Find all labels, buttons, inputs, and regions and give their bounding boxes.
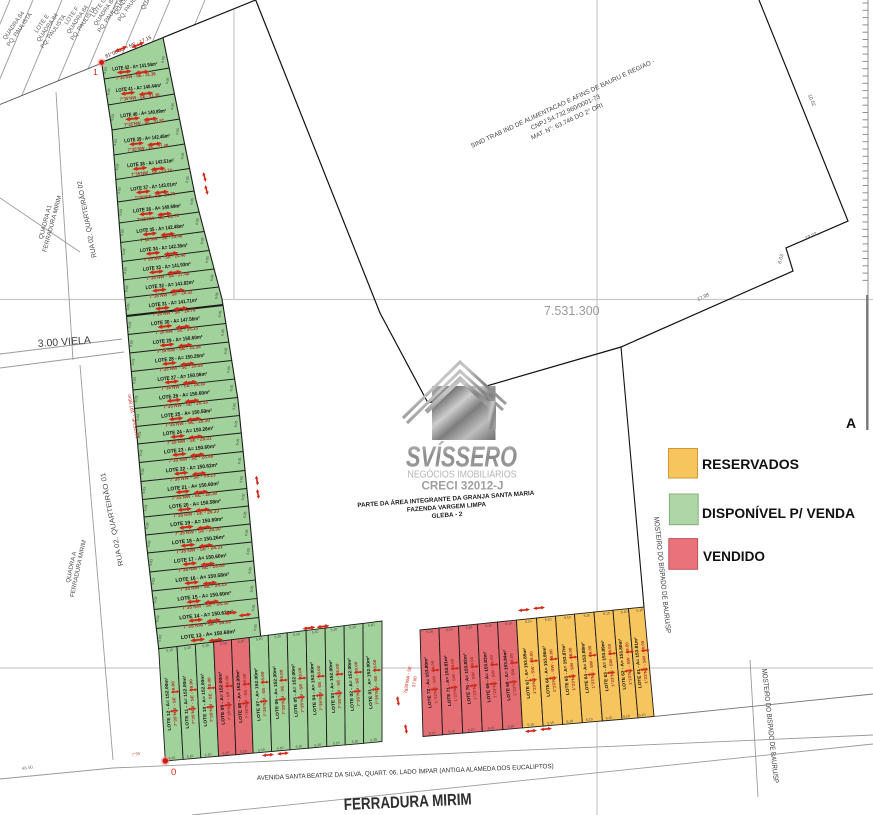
svg-text:MOSTEIRO DO BISPADO DE BAURU/S: MOSTEIRO DO BISPADO DE BAURU/SP	[760, 668, 781, 783]
svg-text:RUA 02. QUARTEIRÃO 01: RUA 02. QUARTEIRÃO 01	[98, 472, 125, 567]
svg-text:46.50: 46.50	[21, 764, 33, 771]
svg-text:QUADRA 84: QUADRA 84	[140, 0, 164, 11]
svg-text:6.03: 6.03	[777, 253, 785, 264]
svg-text:SIND TRAB IND DE ALIMENTACAO E: SIND TRAB IND DE ALIMENTACAO E AFINS DE …	[470, 58, 656, 150]
svg-text:0: 0	[171, 767, 176, 778]
svg-text:7.531.300: 7.531.300	[544, 304, 600, 318]
svg-text:AVENIDA SANTA BEATRIZ DA SILVA: AVENIDA SANTA BEATRIZ DA SILVA, QUART. 0…	[257, 761, 554, 782]
svg-text:7g35'NW - SE: 7g35'NW - SE	[403, 666, 413, 694]
svg-text:DISPONÍVEL P/ VENDA: DISPONÍVEL P/ VENDA	[702, 505, 855, 522]
svg-text:37.00: 37.00	[411, 675, 418, 687]
svg-text:1: 1	[93, 67, 98, 77]
svg-text:CRECI 32012-J: CRECI 32012-J	[422, 481, 504, 493]
svg-text:17.98: 17.98	[696, 292, 710, 303]
svg-text:GLEBA - 2: GLEBA - 2	[431, 511, 463, 520]
svg-text:10.02: 10.02	[806, 94, 816, 108]
svg-text:FERRADURA MIRIM: FERRADURA MIRIM	[343, 790, 472, 814]
svg-text:3.00 VIELA: 3.00 VIELA	[37, 334, 91, 350]
svg-text:RESERVADOS: RESERVADOS	[702, 457, 799, 473]
svg-text:RUA 02. QUARTEIRÃO 02: RUA 02. QUARTEIRÃO 02	[75, 180, 99, 258]
svg-text:NEGÓCIOS IMOBILIÁRIOS: NEGÓCIOS IMOBILIÁRIOS	[408, 468, 517, 481]
svg-text:7°35': 7°35'	[131, 750, 141, 757]
svg-text:19.02: 19.02	[804, 231, 818, 242]
svg-text:A: A	[846, 415, 856, 431]
svg-text:VENDIDO: VENDIDO	[703, 549, 765, 565]
svg-text:MOSTEIRO DO BISPADO DE BAURU/S: MOSTEIRO DO BISPADO DE BAURU/SP	[652, 516, 673, 633]
